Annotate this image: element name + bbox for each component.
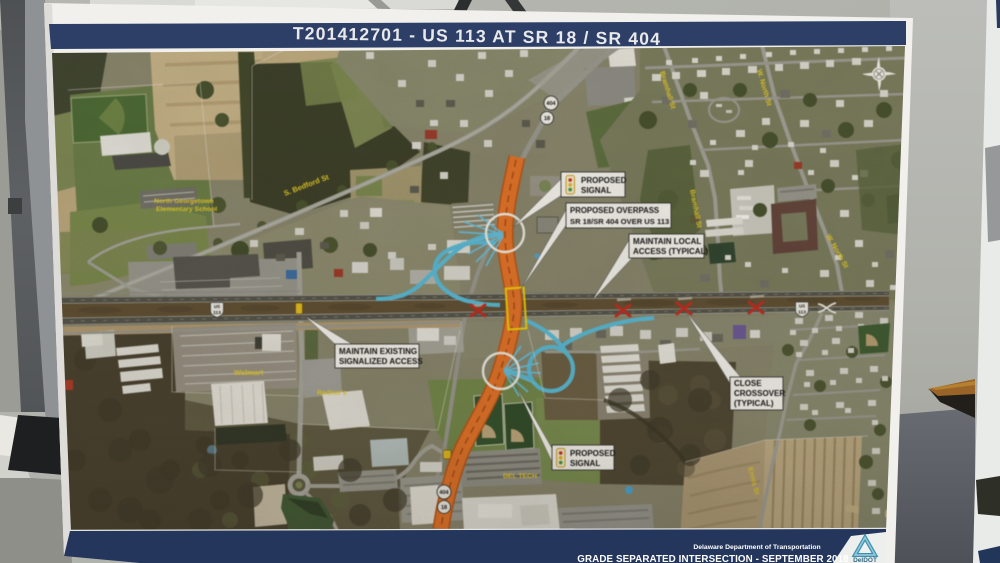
svg-text:DelDOT: DelDOT	[853, 557, 877, 563]
svg-text:Delaware Department of Transpo: Delaware Department of Transportation	[693, 544, 820, 551]
svg-text:GRADE SEPARATED INTERSECTION -: GRADE SEPARATED INTERSECTION - SEPTEMBER…	[577, 554, 849, 563]
